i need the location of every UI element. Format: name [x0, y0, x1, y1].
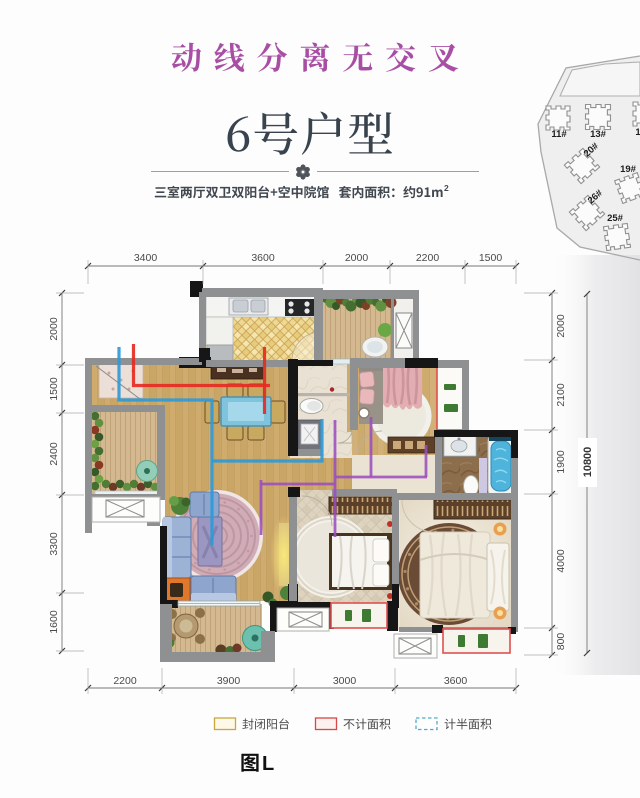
svg-text:11#: 11# — [551, 129, 567, 140]
svg-text:2000: 2000 — [345, 252, 369, 264]
svg-text:1500: 1500 — [479, 252, 503, 264]
svg-text:2400: 2400 — [48, 442, 60, 466]
svg-text:2: 2 — [444, 183, 449, 193]
svg-text:25#: 25# — [607, 213, 624, 224]
svg-text:3300: 3300 — [48, 532, 60, 556]
svg-text:3000: 3000 — [333, 675, 357, 687]
svg-text:2200: 2200 — [113, 675, 137, 687]
svg-text:1: 1 — [635, 127, 640, 138]
svg-text:4000: 4000 — [555, 549, 567, 573]
svg-text:L: L — [262, 753, 274, 775]
svg-text:3600: 3600 — [251, 252, 275, 264]
svg-text:1600: 1600 — [48, 610, 60, 634]
svg-text:13#: 13# — [590, 129, 607, 140]
svg-text:2000: 2000 — [48, 317, 60, 341]
svg-text:2000: 2000 — [555, 314, 567, 338]
svg-text:2100: 2100 — [555, 383, 567, 407]
svg-text:2200: 2200 — [416, 252, 440, 264]
svg-text:3400: 3400 — [134, 252, 158, 264]
svg-text:19#: 19# — [620, 164, 637, 175]
svg-text:1500: 1500 — [48, 377, 60, 401]
svg-text:800: 800 — [555, 633, 567, 651]
svg-text:10800: 10800 — [582, 447, 594, 478]
svg-text:3900: 3900 — [217, 675, 241, 687]
svg-text:1900: 1900 — [555, 450, 567, 474]
svg-text:3600: 3600 — [444, 675, 468, 687]
